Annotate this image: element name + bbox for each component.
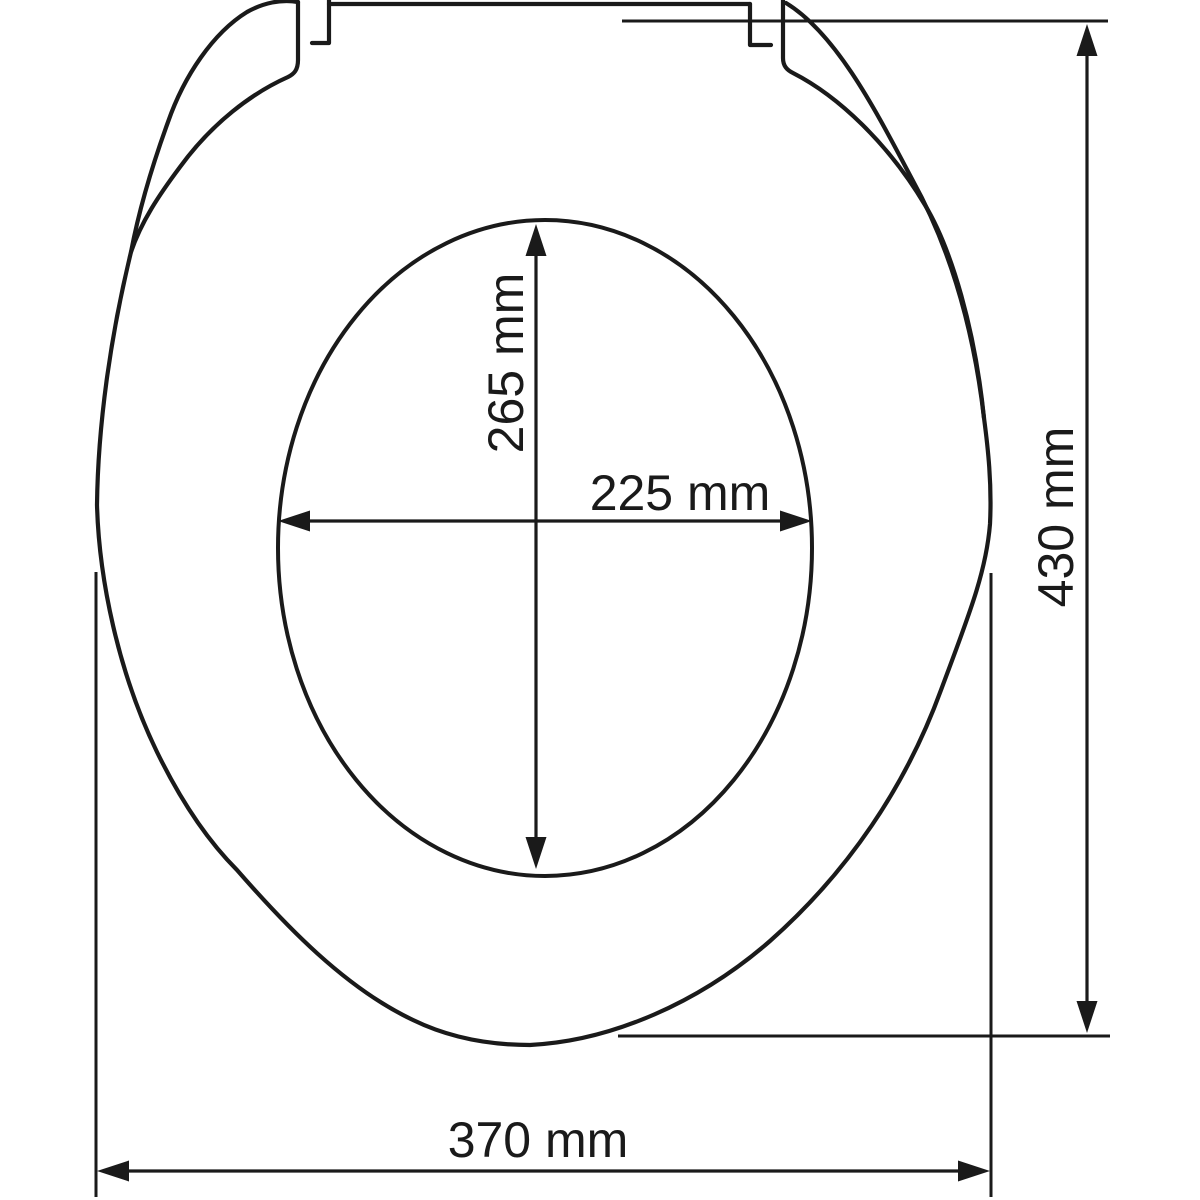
- dim-outer-height-label: 430 mm: [1028, 427, 1084, 608]
- right-hinge-notch-inner: [750, 4, 771, 45]
- dim-outer-width-arrow-right-icon: [958, 1161, 990, 1182]
- dim-inner-height-arrow-down-icon: [526, 837, 547, 869]
- dim-outer-height-arrow-down-icon: [1077, 1001, 1098, 1033]
- dim-outer-width-label: 370 mm: [448, 1112, 629, 1168]
- right-hinge-notch-outer: [783, 0, 984, 418]
- dim-inner-height-arrow-up-icon: [526, 224, 547, 256]
- dim-inner-width-arrow-right-icon: [780, 511, 812, 532]
- dim-inner-height-label: 265 mm: [478, 273, 534, 454]
- dim-inner-width-arrow-left-icon: [278, 511, 310, 532]
- dim-inner-height: 265 mm: [478, 224, 547, 869]
- toilet-seat-dimension-diagram: 265 mm 225 mm 430 mm 370 mm: [0, 0, 1200, 1200]
- dim-outer-height-arrow-up-icon: [1077, 24, 1098, 56]
- seat-outer-boundary: [97, 1, 991, 1045]
- dimension-drawing-canvas: 265 mm 225 mm 430 mm 370 mm: [0, 0, 1200, 1200]
- dim-inner-width-label: 225 mm: [590, 465, 771, 521]
- dim-outer-height: 430 mm: [618, 21, 1110, 1036]
- dim-outer-width-arrow-left-icon: [97, 1161, 129, 1182]
- seat-inner-opening: [278, 220, 812, 876]
- dim-inner-width: 225 mm: [278, 465, 812, 532]
- dim-outer-width: 370 mm: [96, 572, 991, 1197]
- left-hinge-notch-inner: [312, 0, 329, 43]
